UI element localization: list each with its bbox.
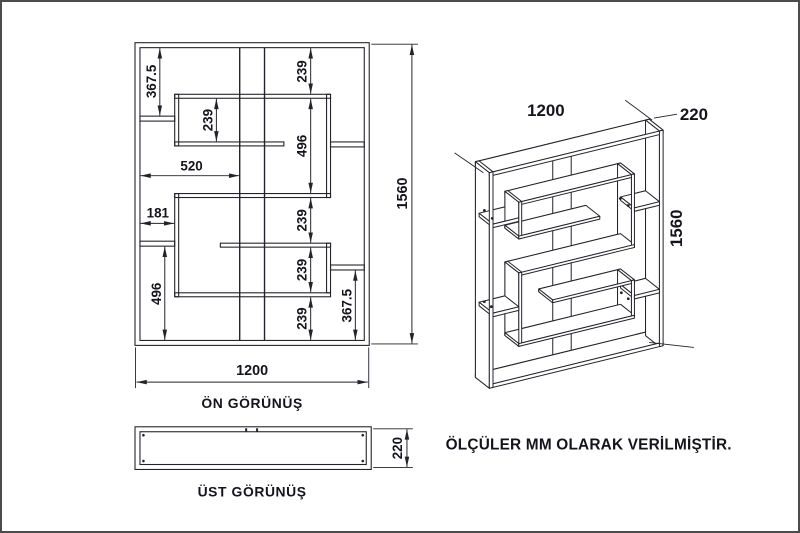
- fv-dim-niche-width-label: 181: [147, 205, 170, 220]
- top-view-caption: ÜST GÖRÜNÜŞ: [198, 483, 307, 499]
- fv-dim-right-bottom-label: 367.5: [339, 288, 354, 322]
- fv-dim-right-mid-label: 496: [295, 135, 310, 157]
- iso-dim-depth-label: 220: [680, 105, 708, 124]
- front-view-dimensions: 367.5 239 239 496 239 239 239 367.5 496 …: [136, 44, 418, 388]
- top-view-post-mark: [256, 428, 258, 431]
- iso-dim-height-label: 1560: [667, 210, 686, 248]
- fv-dim-left-top-label: 367.5: [144, 64, 159, 98]
- fv-dim-shelf-offset-label: 520: [180, 159, 202, 174]
- fv-dim-upper-box-label: 239: [200, 109, 215, 131]
- drawing-canvas: 367.5 239 239 496 239 239 239 367.5 496 …: [2, 2, 798, 531]
- front-view-caption: ÖN GÖRÜNÜŞ: [201, 395, 303, 411]
- fv-dim-right-low2-label: 239: [295, 259, 310, 281]
- fv-dim-width-label: 1200: [236, 363, 268, 379]
- top-view-post-mark: [245, 428, 247, 431]
- fv-dim-height-label: 1560: [395, 178, 411, 210]
- fv-dim-right-low3-label: 239: [295, 307, 310, 329]
- units-note: ÖLÇÜLER MM OLARAK VERİLMİŞTİR.: [446, 437, 732, 454]
- tv-dim-depth-label: 220: [390, 437, 405, 459]
- iso-dim-width-label: 1200: [527, 101, 565, 120]
- front-view: 367.5 239 239 496 239 239 239 367.5 496 …: [135, 43, 418, 411]
- isometric-view: 1200 220 1560: [455, 100, 708, 388]
- top-view-panels: [135, 427, 371, 470]
- front-view-panels: [135, 43, 369, 346]
- fv-dim-right-low1-label: 239: [295, 209, 310, 231]
- top-view-dimensions: 220: [373, 429, 413, 468]
- top-view: 220 ÜST GÖRÜNÜŞ: [135, 427, 413, 499]
- fv-dim-right-top-label: 239: [295, 60, 310, 82]
- technical-drawing-sheet: 367.5 239 239 496 239 239 239 367.5 496 …: [0, 0, 800, 533]
- fv-dim-left-bottom-label: 496: [149, 283, 164, 305]
